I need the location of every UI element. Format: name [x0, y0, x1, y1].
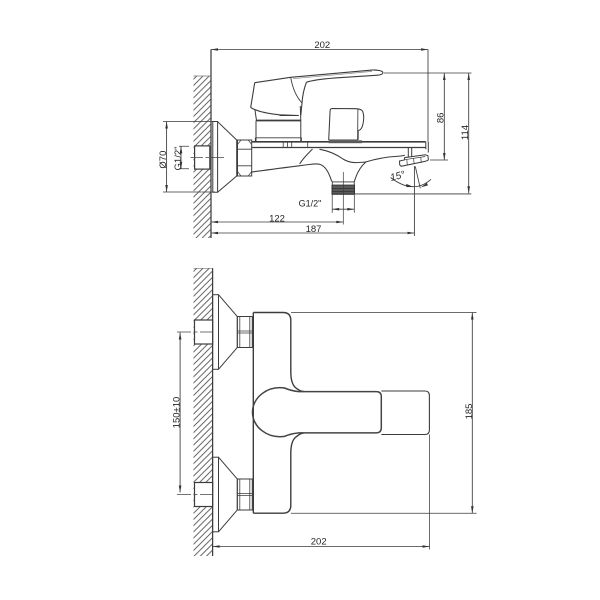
- svg-text:G1/2": G1/2": [299, 198, 322, 208]
- svg-text:202: 202: [314, 40, 330, 51]
- svg-text:Ø70: Ø70: [158, 151, 169, 169]
- svg-text:122: 122: [269, 213, 285, 224]
- svg-text:150±10: 150±10: [171, 397, 182, 429]
- svg-text:185: 185: [464, 404, 475, 420]
- svg-text:187: 187: [306, 224, 322, 235]
- svg-text:G1/2": G1/2": [173, 147, 184, 171]
- svg-text:202: 202: [311, 537, 327, 548]
- svg-text:114: 114: [460, 125, 471, 140]
- svg-text:86: 86: [436, 113, 447, 124]
